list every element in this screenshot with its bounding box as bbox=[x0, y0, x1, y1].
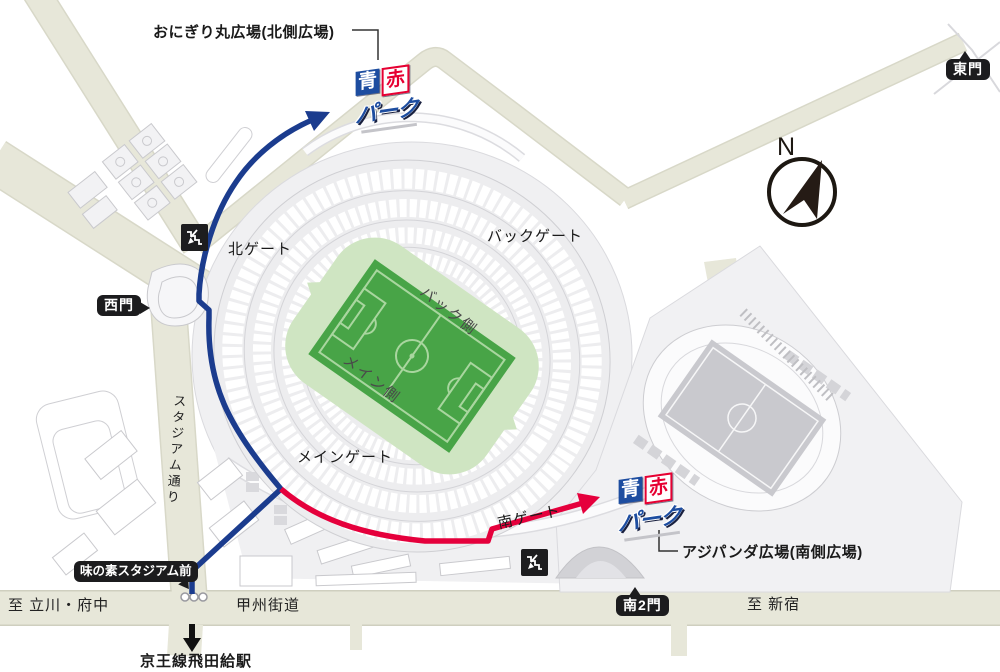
stairs-icon-south bbox=[521, 549, 548, 576]
station-label: 京王線飛田給駅 bbox=[140, 650, 252, 671]
stadium-access-map: おにぎり丸広場(北側広場) アジパンダ広場(南側広場) 北ゲート バックゲート … bbox=[0, 0, 1000, 672]
south-plaza-label: アジパンダ広場(南側広場) bbox=[682, 541, 863, 562]
south2-gate-badge: 南2門 bbox=[616, 595, 669, 616]
compass-icon bbox=[769, 159, 835, 225]
to-tachikawa-label: 至 立川・府中 bbox=[8, 594, 109, 615]
east-gate-pointer bbox=[959, 51, 971, 60]
stairs-icon-north bbox=[181, 224, 208, 251]
logo-ao-tile: 青 bbox=[619, 476, 643, 504]
logo-ao-tile: 青 bbox=[356, 68, 380, 96]
west-gate-pointer bbox=[140, 302, 150, 314]
west-gate-badge: 西門 bbox=[97, 295, 141, 316]
crossing bbox=[181, 593, 207, 601]
koshu-kaido-label: 甲州街道 bbox=[236, 594, 300, 615]
north-plaza-label: おにぎり丸広場(北側広場) bbox=[153, 21, 335, 42]
back-gate-label: バックゲート bbox=[487, 225, 583, 246]
north-gate-label: 北ゲート bbox=[228, 238, 292, 259]
aoaka-park-logo-north: 青 赤 パーク bbox=[341, 63, 429, 136]
east-gate-badge: 東門 bbox=[946, 59, 990, 80]
main-gate-label: メインゲート bbox=[297, 446, 393, 467]
compass-n-label: N bbox=[777, 133, 795, 162]
to-shinjuku-label: 至 新宿 bbox=[747, 593, 800, 614]
bus-stop-badge: 味の素スタジアム前 bbox=[74, 561, 198, 582]
east-gate-badge-label: 東門 bbox=[953, 61, 983, 77]
west-gate-badge-label: 西門 bbox=[104, 297, 134, 313]
aoaka-park-logo-south: 青 赤 パーク bbox=[604, 471, 692, 544]
south2-gate-pointer bbox=[629, 587, 641, 596]
south2-gate-badge-label: 南2門 bbox=[623, 597, 662, 613]
bus-stop-badge-label: 味の素スタジアム前 bbox=[80, 564, 192, 578]
